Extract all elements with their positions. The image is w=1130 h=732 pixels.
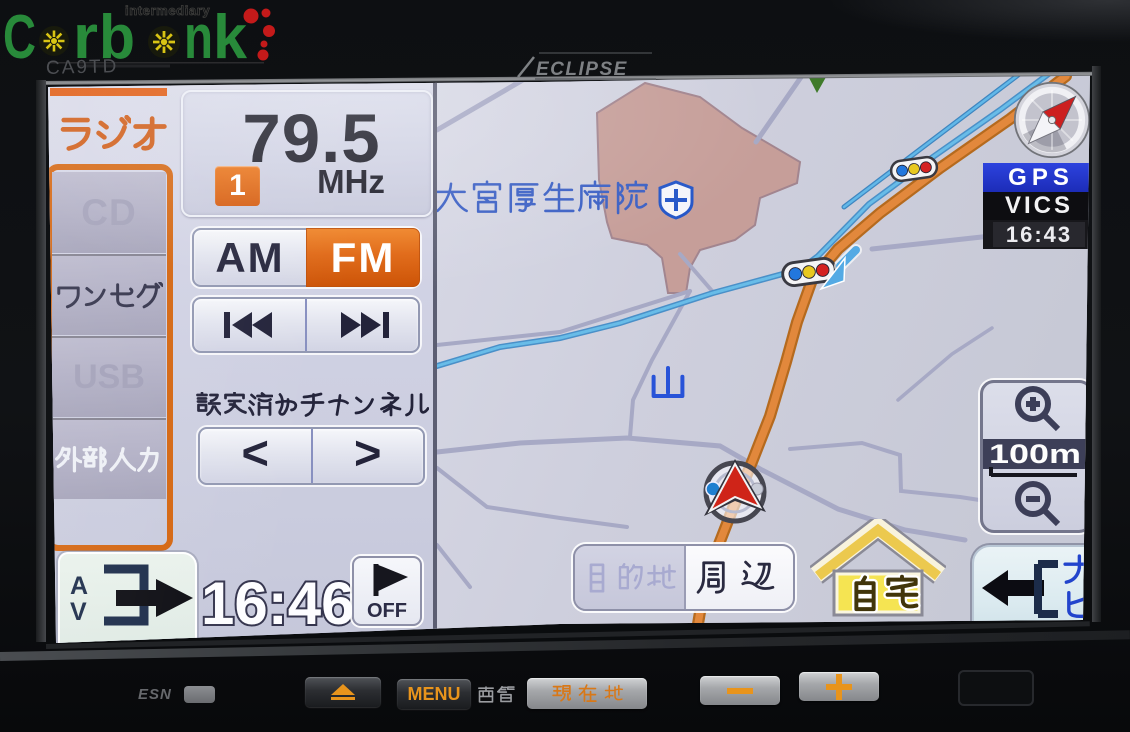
svg-text:C: C bbox=[3, 3, 36, 70]
svg-text:100m: 100m bbox=[989, 439, 1081, 469]
svg-text:OFF: OFF bbox=[367, 600, 407, 622]
svg-text:k: k bbox=[213, 3, 248, 70]
svg-text:A: A bbox=[70, 572, 88, 600]
svg-text:ECLIPSE: ECLIPSE bbox=[536, 59, 628, 80]
svg-text:n: n bbox=[184, 3, 213, 70]
svg-text:V: V bbox=[70, 598, 87, 626]
